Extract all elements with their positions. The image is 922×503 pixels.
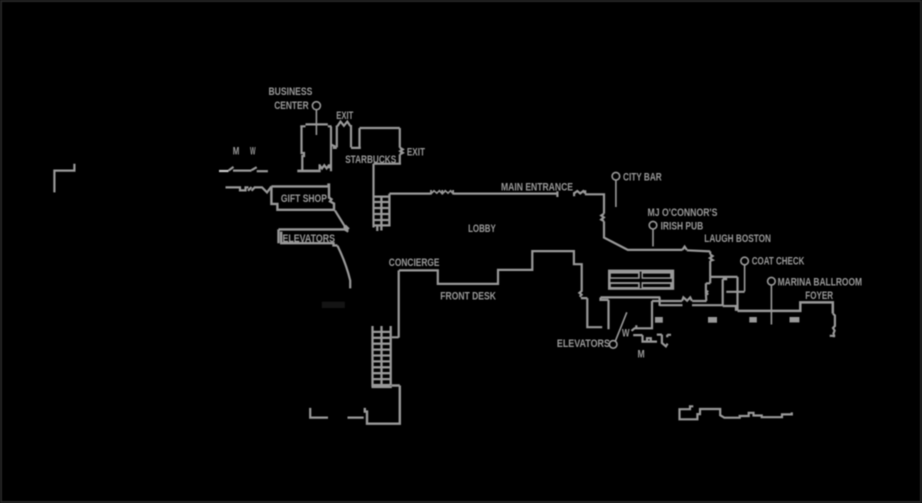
svg-text:FOYER: FOYER [805, 290, 833, 302]
svg-text:STARBUCKS: STARBUCKS [345, 154, 396, 166]
svg-text:LAUGH BOSTON: LAUGH BOSTON [704, 233, 771, 245]
svg-text:ELEVATORS: ELEVATORS [283, 233, 336, 245]
svg-text:CONCIERGE: CONCIERGE [389, 257, 440, 269]
svg-text:BUSINESS: BUSINESS [269, 86, 313, 98]
svg-text:GIFT SHOP: GIFT SHOP [281, 193, 327, 205]
svg-text:M: M [233, 146, 240, 158]
svg-text:CITY BAR: CITY BAR [623, 171, 662, 183]
svg-text:CENTER: CENTER [274, 100, 309, 112]
svg-text:MJ O'CONNOR'S: MJ O'CONNOR'S [648, 207, 718, 219]
svg-text:MAIN ENTRANCE: MAIN ENTRANCE [501, 182, 573, 194]
svg-text:COAT CHECK: COAT CHECK [752, 256, 805, 268]
svg-text:EXIT: EXIT [407, 147, 425, 159]
svg-text:M: M [638, 348, 645, 360]
svg-text:EXIT: EXIT [336, 110, 353, 122]
svg-text:FRONT DESK: FRONT DESK [440, 291, 496, 303]
svg-text:W: W [250, 146, 256, 158]
svg-text:IRISH PUB: IRISH PUB [661, 220, 704, 232]
svg-text:ELEVATORS: ELEVATORS [557, 338, 610, 350]
svg-text:MARINA BALLROOM: MARINA BALLROOM [778, 277, 863, 289]
svg-text:LOBBY: LOBBY [468, 223, 496, 235]
svg-text:W: W [622, 328, 630, 340]
